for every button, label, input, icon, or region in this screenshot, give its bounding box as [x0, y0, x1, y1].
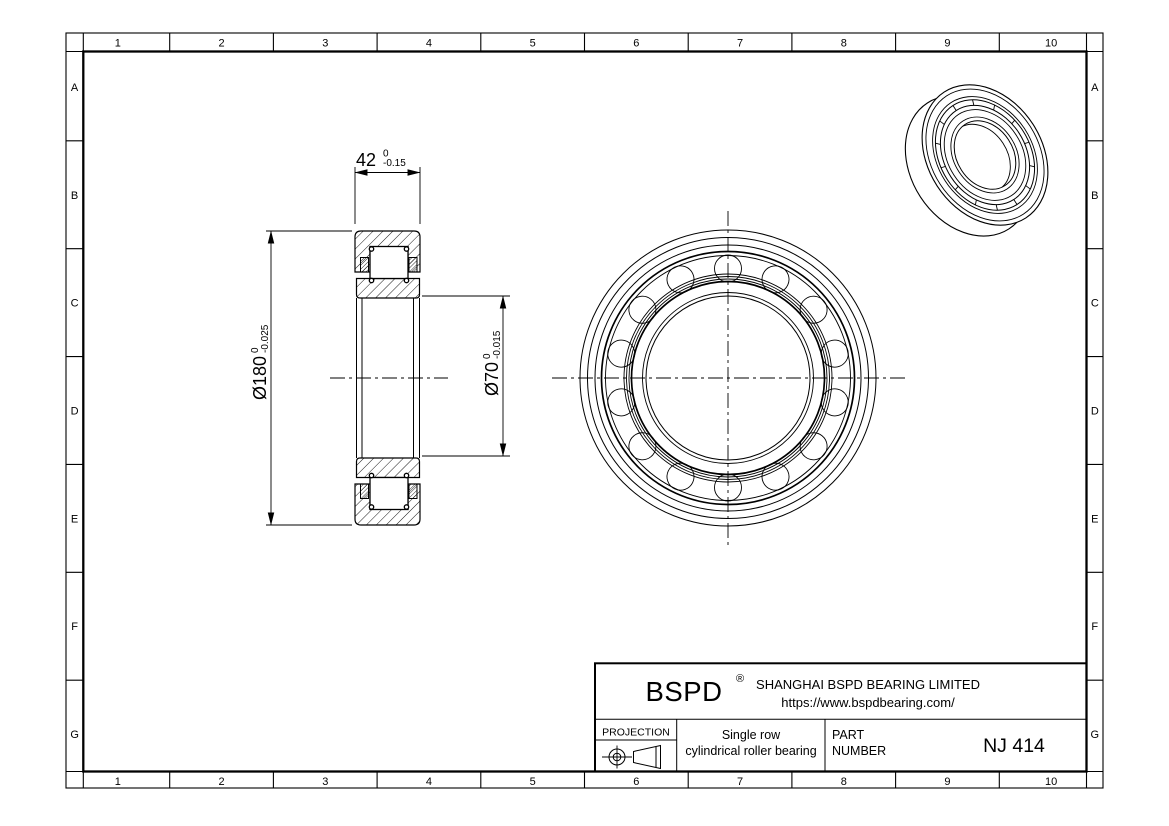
col-label-top-6: 6: [633, 37, 639, 49]
isometric-view: [880, 61, 1074, 260]
col-label-top-5: 5: [530, 37, 536, 49]
dim-width: 42 0 -0.15: [355, 149, 420, 225]
dim-bore-tol-lower: -0.015: [492, 330, 503, 359]
first-angle-projection-icon: [602, 746, 661, 769]
part-number-value: NJ 414: [983, 735, 1045, 757]
dim-width-value: 42: [356, 150, 376, 170]
dim-od-tol-lower: -0.025: [260, 324, 271, 353]
bearing-description-line1: Single row: [722, 728, 781, 742]
col-label-bottom-9: 9: [944, 776, 950, 788]
inner-ring-section-bottom: [357, 458, 420, 478]
inner-ring-section-top: [357, 279, 420, 299]
fillet-detail: [369, 505, 373, 509]
roller-section-bottom: [370, 478, 408, 510]
col-label-top-1: 1: [115, 37, 121, 49]
col-label-top-10: 10: [1045, 37, 1057, 49]
row-label-left-G: G: [70, 729, 79, 741]
row-label-right-E: E: [1091, 513, 1098, 525]
dim-od-value: Ø180: [250, 356, 270, 400]
roller-section-top: [370, 247, 408, 279]
fillet-detail: [369, 473, 373, 477]
row-label-right-B: B: [1091, 190, 1098, 202]
fillet-detail: [404, 505, 408, 509]
col-label-top-7: 7: [737, 37, 743, 49]
row-label-left-D: D: [71, 406, 79, 418]
col-label-bottom-8: 8: [841, 776, 847, 788]
fillet-detail: [404, 473, 408, 477]
col-label-bottom-3: 3: [322, 776, 328, 788]
col-label-bottom-7: 7: [737, 776, 743, 788]
company-website: https://www.bspdbearing.com/: [781, 695, 955, 710]
front-view: [552, 211, 906, 546]
dim-bore-diameter: Ø70 0 -0.015: [422, 296, 510, 456]
col-label-bottom-10: 10: [1045, 776, 1057, 788]
cage-section-top-right: [409, 258, 417, 273]
projection-label: PROJECTION: [602, 727, 670, 739]
cage-section-bottom-right: [409, 484, 417, 499]
row-label-left-A: A: [71, 82, 79, 94]
dim-bore-value: Ø70: [482, 362, 502, 396]
cage-section-top-left: [361, 258, 369, 273]
fillet-detail: [404, 278, 408, 282]
col-label-top-4: 4: [426, 37, 432, 49]
cage-section-bottom-left: [361, 484, 369, 499]
col-label-bottom-6: 6: [633, 776, 639, 788]
row-label-left-B: B: [71, 190, 78, 202]
fillet-detail: [369, 278, 373, 282]
fillet-detail: [404, 247, 408, 251]
col-label-bottom-2: 2: [218, 776, 224, 788]
registered-mark: ®: [736, 673, 744, 685]
brand-logo: BSPD: [646, 676, 723, 707]
row-label-right-G: G: [1091, 729, 1100, 741]
drawing-sheet: 1122334455667788991010AABBCCDDEEFFGG: [0, 0, 1169, 826]
section-view: [330, 231, 448, 525]
row-label-right-A: A: [1091, 82, 1099, 94]
row-label-right-C: C: [1091, 298, 1099, 310]
title-block: BSPD ® SHANGHAI BSPD BEARING LIMITED htt…: [595, 663, 1087, 771]
col-label-bottom-4: 4: [426, 776, 432, 788]
part-label-line1: PART: [832, 728, 865, 742]
col-label-top-2: 2: [218, 37, 224, 49]
row-label-left-E: E: [71, 513, 78, 525]
col-label-top-8: 8: [841, 37, 847, 49]
bearing-description-line2: cylindrical roller bearing: [685, 744, 816, 758]
fillet-detail: [369, 247, 373, 251]
col-label-bottom-1: 1: [115, 776, 121, 788]
company-name: SHANGHAI BSPD BEARING LIMITED: [756, 677, 980, 692]
part-label-line2: NUMBER: [832, 744, 886, 758]
col-label-top-3: 3: [322, 37, 328, 49]
col-label-bottom-5: 5: [530, 776, 536, 788]
row-label-left-C: C: [71, 298, 79, 310]
col-label-top-9: 9: [944, 37, 950, 49]
drawing-page: 1122334455667788991010AABBCCDDEEFFGG: [0, 0, 1169, 826]
row-label-left-F: F: [71, 621, 78, 633]
dim-width-tol-lower: -0.15: [383, 158, 406, 169]
row-label-right-D: D: [1091, 406, 1099, 418]
row-label-right-F: F: [1091, 621, 1098, 633]
